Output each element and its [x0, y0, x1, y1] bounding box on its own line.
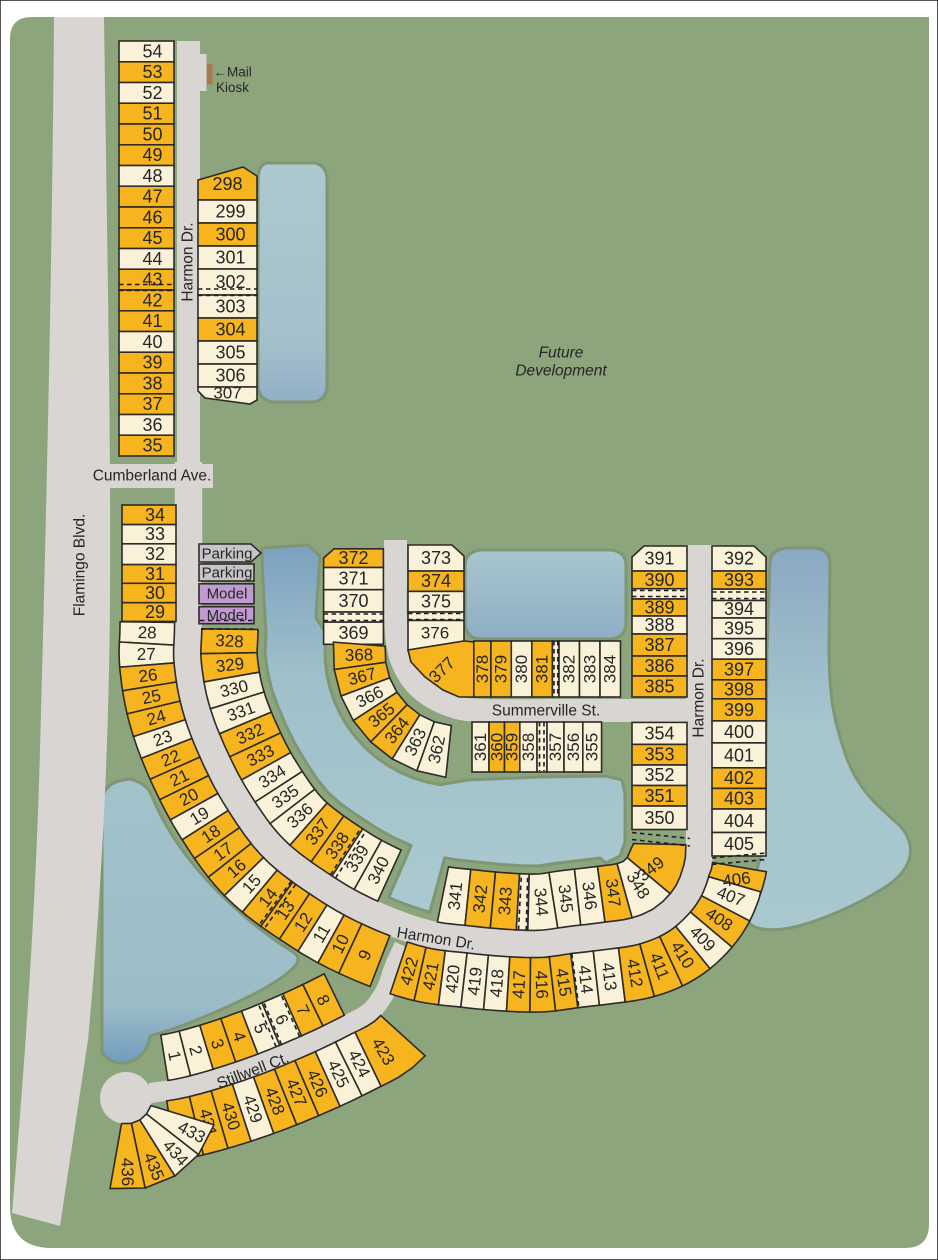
svg-text:Flamingo Blvd.: Flamingo Blvd.: [72, 514, 89, 617]
svg-text:378: 378: [473, 655, 492, 683]
svg-text:346: 346: [578, 881, 600, 911]
svg-text:393: 393: [724, 570, 754, 590]
svg-text:306: 306: [215, 366, 245, 386]
svg-text:397: 397: [724, 660, 754, 680]
svg-text:418: 418: [487, 968, 508, 998]
svg-text:34: 34: [145, 505, 165, 525]
svg-text:355: 355: [583, 733, 602, 761]
svg-text:403: 403: [724, 789, 754, 809]
svg-text:390: 390: [644, 570, 674, 590]
svg-text:350: 350: [644, 808, 674, 828]
svg-text:46: 46: [142, 207, 162, 227]
svg-text:358: 358: [519, 733, 538, 761]
svg-text:396: 396: [724, 639, 754, 659]
svg-text:395: 395: [724, 618, 754, 638]
svg-text:53: 53: [142, 62, 162, 82]
svg-text:345: 345: [554, 883, 576, 913]
svg-text:372: 372: [338, 548, 368, 568]
svg-text:25: 25: [140, 686, 162, 708]
svg-text:299: 299: [215, 202, 245, 222]
svg-text:42: 42: [142, 290, 162, 310]
svg-text:Harmon Dr.: Harmon Dr.: [691, 658, 708, 737]
svg-text:28: 28: [137, 623, 156, 643]
svg-text:Future: Future: [539, 345, 584, 362]
svg-text:Parking: Parking: [202, 546, 253, 563]
svg-text:Harmon Dr.: Harmon Dr.: [180, 222, 197, 301]
svg-text:Model: Model: [207, 607, 248, 624]
svg-text:300: 300: [215, 225, 245, 245]
svg-text:52: 52: [142, 83, 162, 103]
svg-text:386: 386: [644, 656, 674, 676]
svg-text:381: 381: [533, 655, 552, 683]
svg-text:388: 388: [644, 615, 674, 635]
svg-text:369: 369: [338, 623, 368, 643]
svg-text:48: 48: [142, 166, 162, 186]
svg-text:402: 402: [724, 768, 754, 788]
svg-text:376: 376: [421, 624, 449, 643]
svg-text:45: 45: [142, 228, 162, 248]
svg-text:Development: Development: [515, 363, 607, 380]
svg-text:398: 398: [724, 679, 754, 699]
svg-text:413: 413: [598, 961, 621, 992]
svg-text:392: 392: [724, 549, 754, 569]
svg-text:347: 347: [602, 878, 624, 909]
svg-text:399: 399: [724, 700, 754, 720]
svg-text:391: 391: [644, 549, 674, 569]
svg-text:387: 387: [644, 635, 674, 655]
svg-text:26: 26: [137, 665, 158, 686]
svg-text:406: 406: [721, 868, 752, 891]
svg-text:Summerville St.: Summerville St.: [492, 703, 601, 720]
svg-text:44: 44: [142, 249, 162, 269]
svg-text:342: 342: [469, 884, 491, 914]
svg-text:328: 328: [215, 631, 244, 652]
svg-text:352: 352: [644, 765, 674, 785]
svg-text:400: 400: [724, 722, 754, 742]
svg-text:301: 301: [215, 248, 245, 268]
svg-text:41: 41: [142, 311, 162, 331]
svg-text:29: 29: [145, 602, 165, 622]
svg-text:404: 404: [724, 811, 754, 831]
svg-text:356: 356: [564, 733, 583, 761]
svg-text:305: 305: [215, 343, 245, 363]
svg-text:298: 298: [212, 174, 242, 194]
svg-text:Model: Model: [207, 586, 248, 603]
svg-text:303: 303: [215, 297, 245, 317]
svg-text:373: 373: [421, 548, 451, 568]
svg-text:351: 351: [644, 786, 674, 806]
svg-text:374: 374: [421, 571, 451, 591]
svg-text:357: 357: [546, 733, 565, 761]
svg-text:54: 54: [142, 41, 162, 61]
svg-text:414: 414: [574, 964, 596, 994]
svg-text:329: 329: [215, 654, 245, 676]
svg-text:35: 35: [142, 436, 162, 456]
svg-text:30: 30: [145, 583, 165, 603]
svg-text:33: 33: [145, 524, 165, 544]
svg-text:50: 50: [142, 124, 162, 144]
svg-text:383: 383: [580, 655, 599, 683]
svg-text:419: 419: [464, 966, 486, 996]
svg-text:353: 353: [644, 745, 674, 765]
svg-text:368: 368: [345, 645, 374, 665]
svg-text:40: 40: [142, 332, 162, 352]
svg-text:385: 385: [644, 677, 674, 697]
svg-text:39: 39: [142, 353, 162, 373]
svg-text:405: 405: [724, 834, 754, 854]
svg-text:375: 375: [421, 592, 451, 612]
svg-text:43: 43: [142, 270, 162, 290]
svg-text:51: 51: [142, 104, 162, 124]
svg-text:36: 36: [142, 415, 162, 435]
svg-text:416: 416: [531, 970, 551, 999]
svg-text:370: 370: [338, 591, 368, 611]
svg-text:304: 304: [215, 320, 245, 340]
svg-text:←Mail: ←Mail: [214, 65, 252, 80]
svg-text:384: 384: [601, 655, 620, 683]
svg-text:341: 341: [444, 881, 466, 911]
svg-text:307: 307: [213, 384, 241, 403]
svg-text:417: 417: [509, 970, 529, 999]
svg-text:354: 354: [644, 723, 674, 743]
svg-text:37: 37: [142, 394, 162, 414]
svg-text:Parking: Parking: [202, 565, 253, 582]
svg-text:Kiosk: Kiosk: [216, 80, 249, 95]
svg-text:379: 379: [492, 655, 511, 683]
svg-text:32: 32: [145, 544, 165, 564]
svg-text:394: 394: [724, 599, 754, 619]
svg-text:Cumberland Ave.: Cumberland Ave.: [93, 468, 212, 485]
svg-text:343: 343: [495, 886, 516, 916]
svg-text:31: 31: [145, 564, 165, 584]
svg-text:420: 420: [442, 964, 464, 994]
svg-text:49: 49: [142, 145, 162, 165]
svg-text:401: 401: [724, 745, 754, 765]
svg-text:380: 380: [512, 655, 531, 683]
svg-text:436: 436: [118, 1158, 137, 1187]
svg-text:382: 382: [560, 655, 579, 683]
svg-text:344: 344: [530, 887, 552, 917]
svg-text:47: 47: [142, 187, 162, 207]
svg-text:371: 371: [338, 569, 368, 589]
svg-text:38: 38: [142, 373, 162, 393]
svg-text:27: 27: [137, 645, 156, 664]
